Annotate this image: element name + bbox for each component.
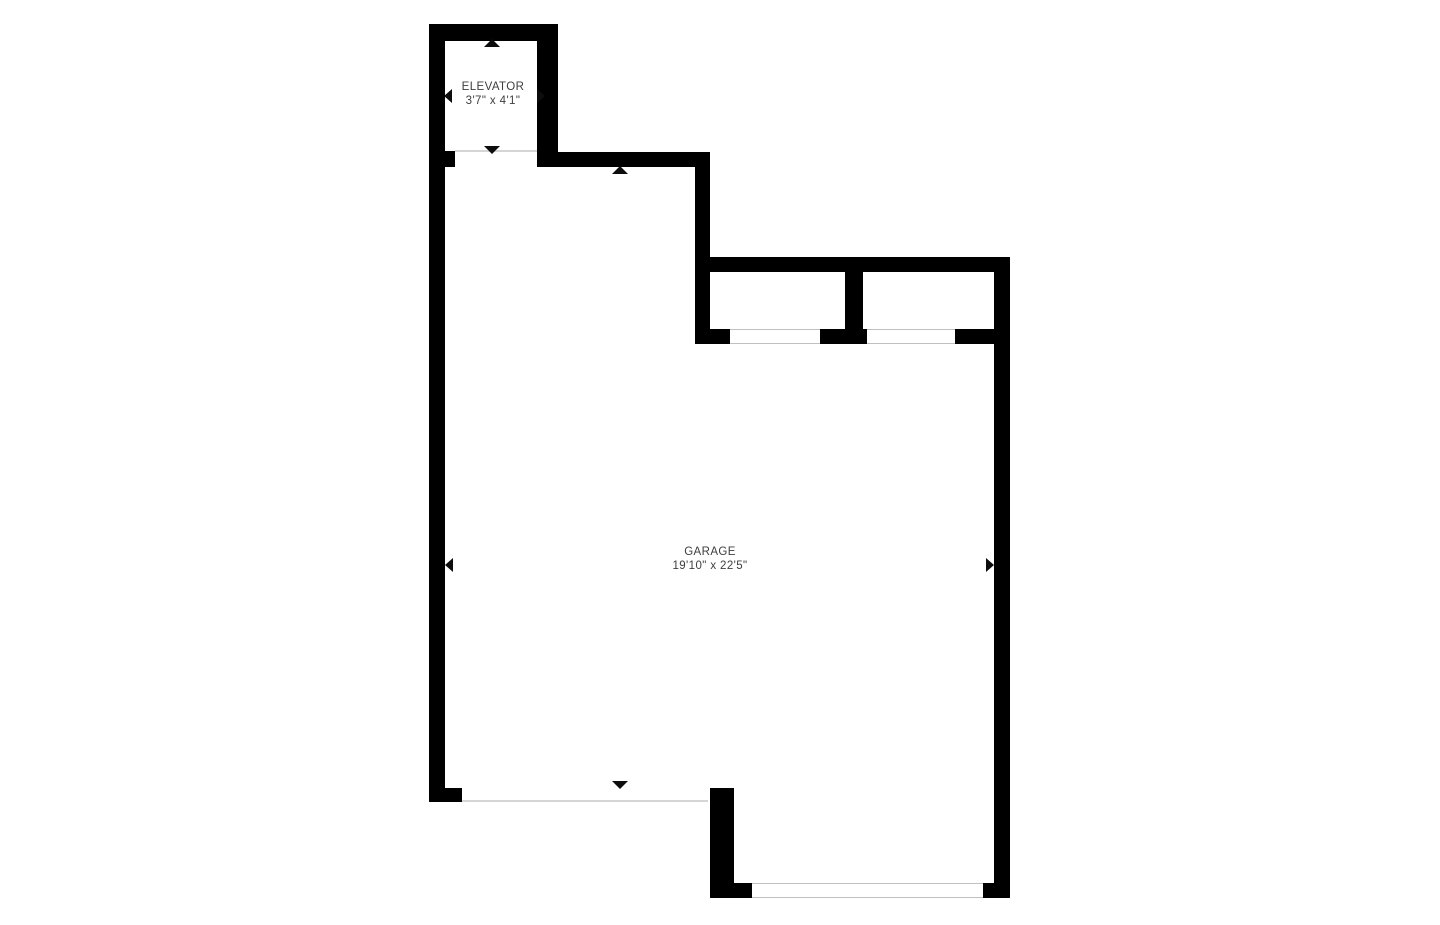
elevator-name: ELEVATOR [462,80,525,94]
wall-bottom-stub [710,788,734,898]
elevator-marker-up-icon [484,39,500,47]
window-alcove-right [867,329,955,344]
garage-name: GARAGE [672,545,747,559]
elevator-marker-right-icon [537,89,545,103]
wall-alcove-divider [845,272,863,330]
window-bottom [752,883,983,898]
wall-alcove-band-middle [820,329,867,344]
wall-bottom-stub-foot [710,883,752,898]
wall-garage-top [537,152,710,167]
garage-marker-down-icon [612,781,628,789]
wall-right-section-top [695,257,1010,272]
garage-door-opening [462,800,708,802]
wall-elevator-right [537,24,558,152]
window-alcove-left [730,329,820,344]
wall-right-exterior [994,257,1010,898]
garage-marker-right-icon [986,558,994,572]
garage-dimensions: 19'10" x 22'5" [672,559,747,573]
elevator-label: ELEVATOR 3'7" x 4'1" [462,80,525,108]
wall-upper-vertical [695,167,710,330]
garage-marker-up-icon [612,166,628,174]
elevator-marker-down-icon [484,146,500,154]
wall-alcove-band-left [695,329,730,344]
elevator-marker-left-icon [444,89,452,103]
wall-bottom-right-foot [983,883,1010,898]
elevator-dimensions: 3'7" x 4'1" [462,94,525,108]
floor-plan: ELEVATOR 3'7" x 4'1" GARAGE 19'10" x 22'… [0,0,1440,925]
wall-elevator-door-stub [443,151,455,167]
garage-label: GARAGE 19'10" x 22'5" [672,545,747,573]
wall-bottom-left-foot [429,788,462,802]
wall-left-exterior [429,24,445,802]
garage-marker-left-icon [445,558,453,572]
